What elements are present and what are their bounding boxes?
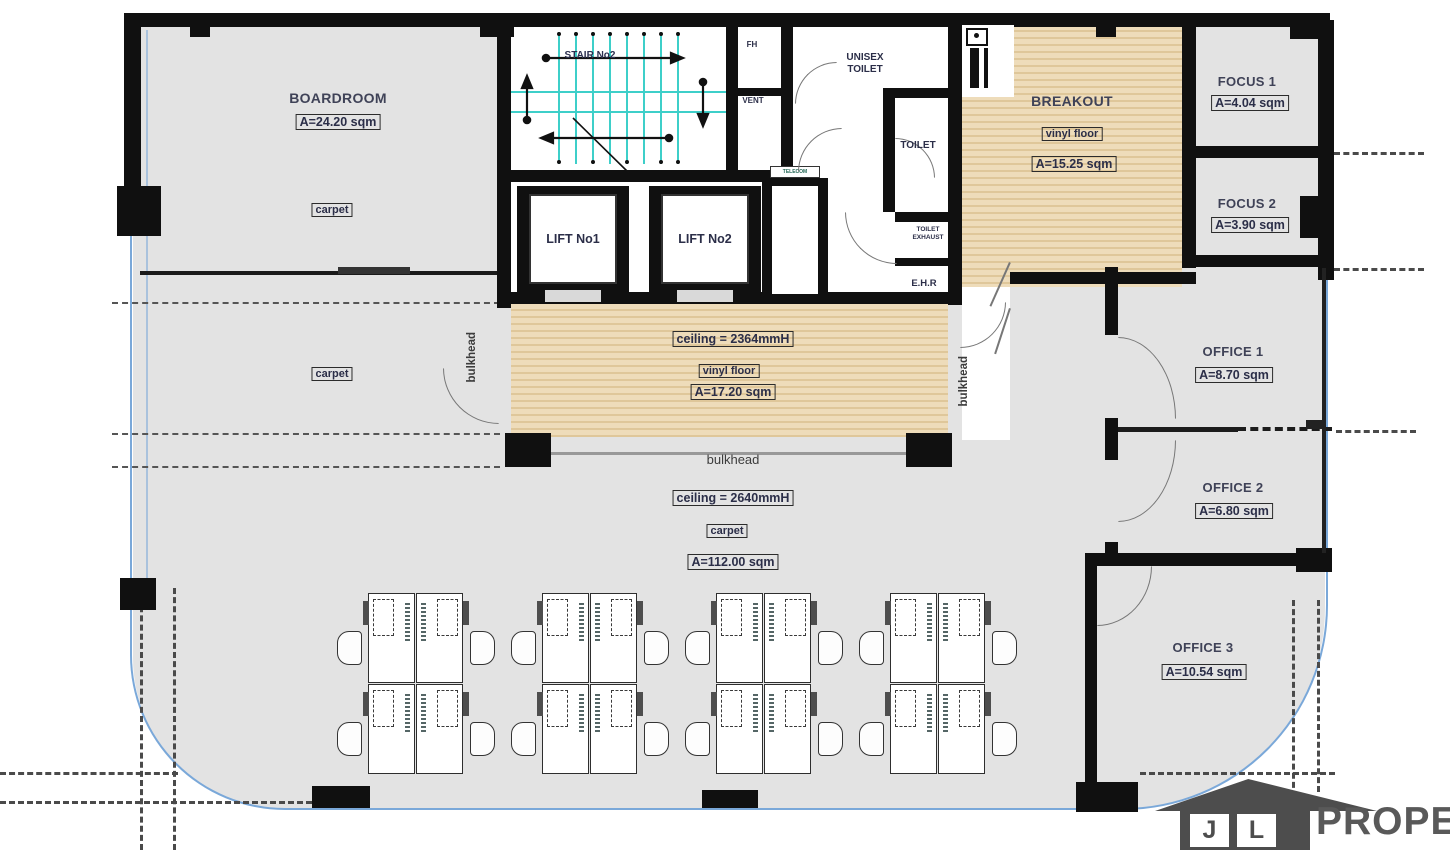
- column: [1096, 13, 1116, 37]
- appliance-icon: [970, 48, 979, 88]
- chair: [511, 722, 536, 756]
- gridline: [1292, 600, 1295, 806]
- gridline: [112, 433, 500, 435]
- column: [312, 786, 370, 808]
- desk-equipment: [895, 599, 916, 636]
- column: [117, 186, 161, 236]
- bulkhead-left-label: bulkhead: [466, 332, 478, 382]
- chair: [992, 631, 1017, 665]
- desk-partition: [811, 601, 817, 625]
- toilet-exhaust-label: TOILET EXHAUST: [904, 226, 952, 242]
- desk-tag: [753, 692, 758, 732]
- logo-letter: L: [1249, 816, 1264, 845]
- desk-tag: [927, 601, 932, 641]
- chair: [470, 722, 495, 756]
- gridline: [1334, 268, 1424, 271]
- desk-tag: [579, 692, 584, 732]
- logo-letter: J: [1203, 816, 1217, 845]
- reception-floor: vinyl floor: [699, 364, 760, 378]
- bulkhead-bottom-label: bulkhead: [707, 452, 760, 467]
- column: [1300, 196, 1334, 238]
- wall-segment: [497, 20, 511, 308]
- desk-partition: [885, 692, 891, 716]
- gridline: [0, 801, 330, 804]
- desk-partition: [985, 601, 991, 625]
- lift-1-label: LIFT No1: [546, 232, 599, 246]
- unisex-toilet-label: UNISEX TOILET: [834, 52, 896, 76]
- desk-tag: [405, 601, 410, 641]
- chair: [818, 631, 843, 665]
- appliance-icon: [974, 33, 979, 38]
- desk-equipment: [611, 690, 632, 727]
- desk-tag: [943, 692, 948, 732]
- desk-equipment: [437, 690, 458, 727]
- lift-door: [677, 290, 733, 302]
- desk-tag: [579, 601, 584, 641]
- riser-floor: [772, 186, 818, 294]
- gridline: [1140, 772, 1335, 775]
- gridline: [112, 302, 500, 304]
- desk-partition: [637, 601, 643, 625]
- desk: [890, 593, 937, 683]
- desk-tag: [943, 601, 948, 641]
- chair: [337, 722, 362, 756]
- desk-equipment: [547, 599, 568, 636]
- breakout-area: A=15.25 sqm: [1032, 156, 1117, 172]
- carpet-zone-label: carpet: [311, 367, 352, 381]
- office2-label: OFFICE 2: [1203, 480, 1264, 495]
- stair-label: STAIR No2: [565, 50, 616, 61]
- vent-label: VENT: [742, 96, 764, 105]
- desk: [416, 593, 463, 683]
- desk-partition: [637, 692, 643, 716]
- desk: [890, 684, 937, 774]
- desk-tag: [769, 601, 774, 641]
- open-office-area: A=112.00 sqm: [687, 554, 778, 570]
- column: [1296, 548, 1332, 572]
- desk: [416, 684, 463, 774]
- office3-label: OFFICE 3: [1173, 640, 1234, 655]
- gridline: [0, 772, 178, 775]
- desk-equipment: [895, 690, 916, 727]
- desk: [590, 684, 637, 774]
- chair: [818, 722, 843, 756]
- wall-segment: [1010, 272, 1196, 284]
- toilet-label: TOILET: [900, 140, 935, 151]
- desk: [938, 593, 985, 683]
- desk-partition: [711, 692, 717, 716]
- office2-area: A=6.80 sqm: [1195, 503, 1273, 519]
- wall-segment: [762, 178, 772, 304]
- wall-segment: [140, 271, 497, 275]
- lift-2-label: LIFT No2: [678, 232, 731, 246]
- desk: [368, 593, 415, 683]
- chair: [337, 631, 362, 665]
- wall-segment: [1105, 418, 1118, 460]
- stair-drawing: [511, 26, 726, 174]
- desk-equipment: [785, 690, 806, 727]
- desk: [938, 684, 985, 774]
- column: [906, 433, 952, 467]
- desk-equipment: [611, 599, 632, 636]
- focus2-area: A=3.90 sqm: [1211, 217, 1289, 233]
- desk-equipment: [373, 690, 394, 727]
- chair: [511, 631, 536, 665]
- desk-cluster: [542, 593, 638, 775]
- gridline: [112, 466, 500, 468]
- wall-segment: [762, 178, 828, 186]
- wall-segment: [895, 212, 962, 222]
- appliance-icon: [984, 48, 988, 88]
- wall-segment: [1318, 20, 1334, 205]
- lift-2: LIFT No2: [661, 194, 749, 284]
- boardroom-area: A=24.20 sqm: [296, 114, 381, 130]
- desk: [764, 684, 811, 774]
- wall-segment: [781, 20, 793, 182]
- wall-segment: [1182, 20, 1196, 268]
- open-office-ceiling: ceiling = 2640mmH: [673, 490, 794, 506]
- desk-partition: [363, 601, 369, 625]
- desk-cluster: [890, 593, 986, 775]
- wall-segment: [1105, 267, 1118, 335]
- breakout-label: BREAKOUT: [1031, 93, 1113, 109]
- desk: [542, 593, 589, 683]
- ehr-label: E.H.R: [911, 278, 936, 289]
- chair: [685, 722, 710, 756]
- lift-door: [545, 290, 601, 302]
- desk-tag: [753, 601, 758, 641]
- desk-partition: [985, 692, 991, 716]
- wall-segment: [1085, 553, 1332, 566]
- desk-equipment: [721, 599, 742, 636]
- desk-partition: [463, 601, 469, 625]
- floor-plan: TELECOM: [0, 0, 1450, 850]
- desk: [764, 593, 811, 683]
- chair: [859, 631, 884, 665]
- chair: [644, 722, 669, 756]
- wall-segment: [1306, 420, 1326, 429]
- desk-equipment: [959, 599, 980, 636]
- desk-tag: [769, 692, 774, 732]
- desk-tag: [927, 692, 932, 732]
- gridline: [1317, 600, 1320, 792]
- desk-tag: [421, 601, 426, 641]
- wall-segment: [1118, 427, 1238, 432]
- wall-segment: [1196, 146, 1332, 158]
- desk-equipment: [959, 690, 980, 727]
- desk-partition: [885, 601, 891, 625]
- desk: [368, 684, 415, 774]
- desk: [716, 684, 763, 774]
- desk-partition: [363, 692, 369, 716]
- desk-equipment: [547, 690, 568, 727]
- wall-segment: [726, 88, 793, 96]
- wall-segment: [895, 258, 962, 266]
- logo-letter-l: L: [1237, 814, 1276, 847]
- breakout-floor: vinyl floor: [1042, 127, 1103, 141]
- desk-partition: [811, 692, 817, 716]
- column: [120, 578, 156, 610]
- boardroom-label: BOARDROOM: [289, 90, 387, 106]
- desk-equipment: [785, 599, 806, 636]
- desk-tag: [421, 692, 426, 732]
- wall-segment: [1085, 566, 1097, 788]
- desk-equipment: [721, 690, 742, 727]
- reception-ceiling: ceiling = 2364mmH: [673, 331, 794, 347]
- desk-tag: [405, 692, 410, 732]
- desk: [590, 593, 637, 683]
- desk-tag: [595, 601, 600, 641]
- desk-partition: [463, 692, 469, 716]
- column: [702, 790, 758, 808]
- chair: [992, 722, 1017, 756]
- wall-segment: [726, 20, 738, 182]
- office1-area: A=8.70 sqm: [1195, 367, 1273, 383]
- desk-partition: [711, 601, 717, 625]
- wall-segment: [1322, 268, 1326, 553]
- logo-letter-j: J: [1190, 814, 1229, 847]
- open-office-floor: carpet: [706, 524, 747, 538]
- focus2-label: FOCUS 2: [1218, 196, 1276, 211]
- office3-area: A=10.54 sqm: [1162, 664, 1247, 680]
- column: [505, 433, 551, 467]
- desk: [716, 593, 763, 683]
- reception-area: A=17.20 sqm: [691, 384, 776, 400]
- wall-segment: [338, 267, 410, 274]
- focus1-area: A=4.04 sqm: [1211, 95, 1289, 111]
- desk: [542, 684, 589, 774]
- gridline: [140, 588, 143, 850]
- desk-partition: [537, 692, 543, 716]
- desk-tag: [595, 692, 600, 732]
- fh-label: FH: [747, 40, 758, 49]
- desk-cluster: [368, 593, 464, 775]
- desk-partition: [537, 601, 543, 625]
- gridline: [1336, 430, 1416, 433]
- focus1-label: FOCUS 1: [1218, 74, 1276, 89]
- chair: [470, 631, 495, 665]
- column: [190, 13, 210, 37]
- glass-inner-line: [146, 30, 148, 610]
- chair: [685, 631, 710, 665]
- desk-cluster: [716, 593, 812, 775]
- gridline: [173, 588, 176, 850]
- logo-wordmark: PROPERTY: [1316, 800, 1450, 844]
- wall-segment: [1182, 255, 1332, 267]
- chair: [644, 631, 669, 665]
- bulkhead-right-label: bulkhead: [958, 356, 970, 406]
- desk-equipment: [373, 599, 394, 636]
- desk-equipment: [437, 599, 458, 636]
- gridline: [1334, 152, 1424, 155]
- chair: [859, 722, 884, 756]
- lift-1: LIFT No1: [529, 194, 617, 284]
- wall-segment: [883, 88, 895, 212]
- office1-label: OFFICE 1: [1203, 344, 1264, 359]
- boardroom-floor: carpet: [311, 203, 352, 217]
- wall-segment: [818, 178, 828, 304]
